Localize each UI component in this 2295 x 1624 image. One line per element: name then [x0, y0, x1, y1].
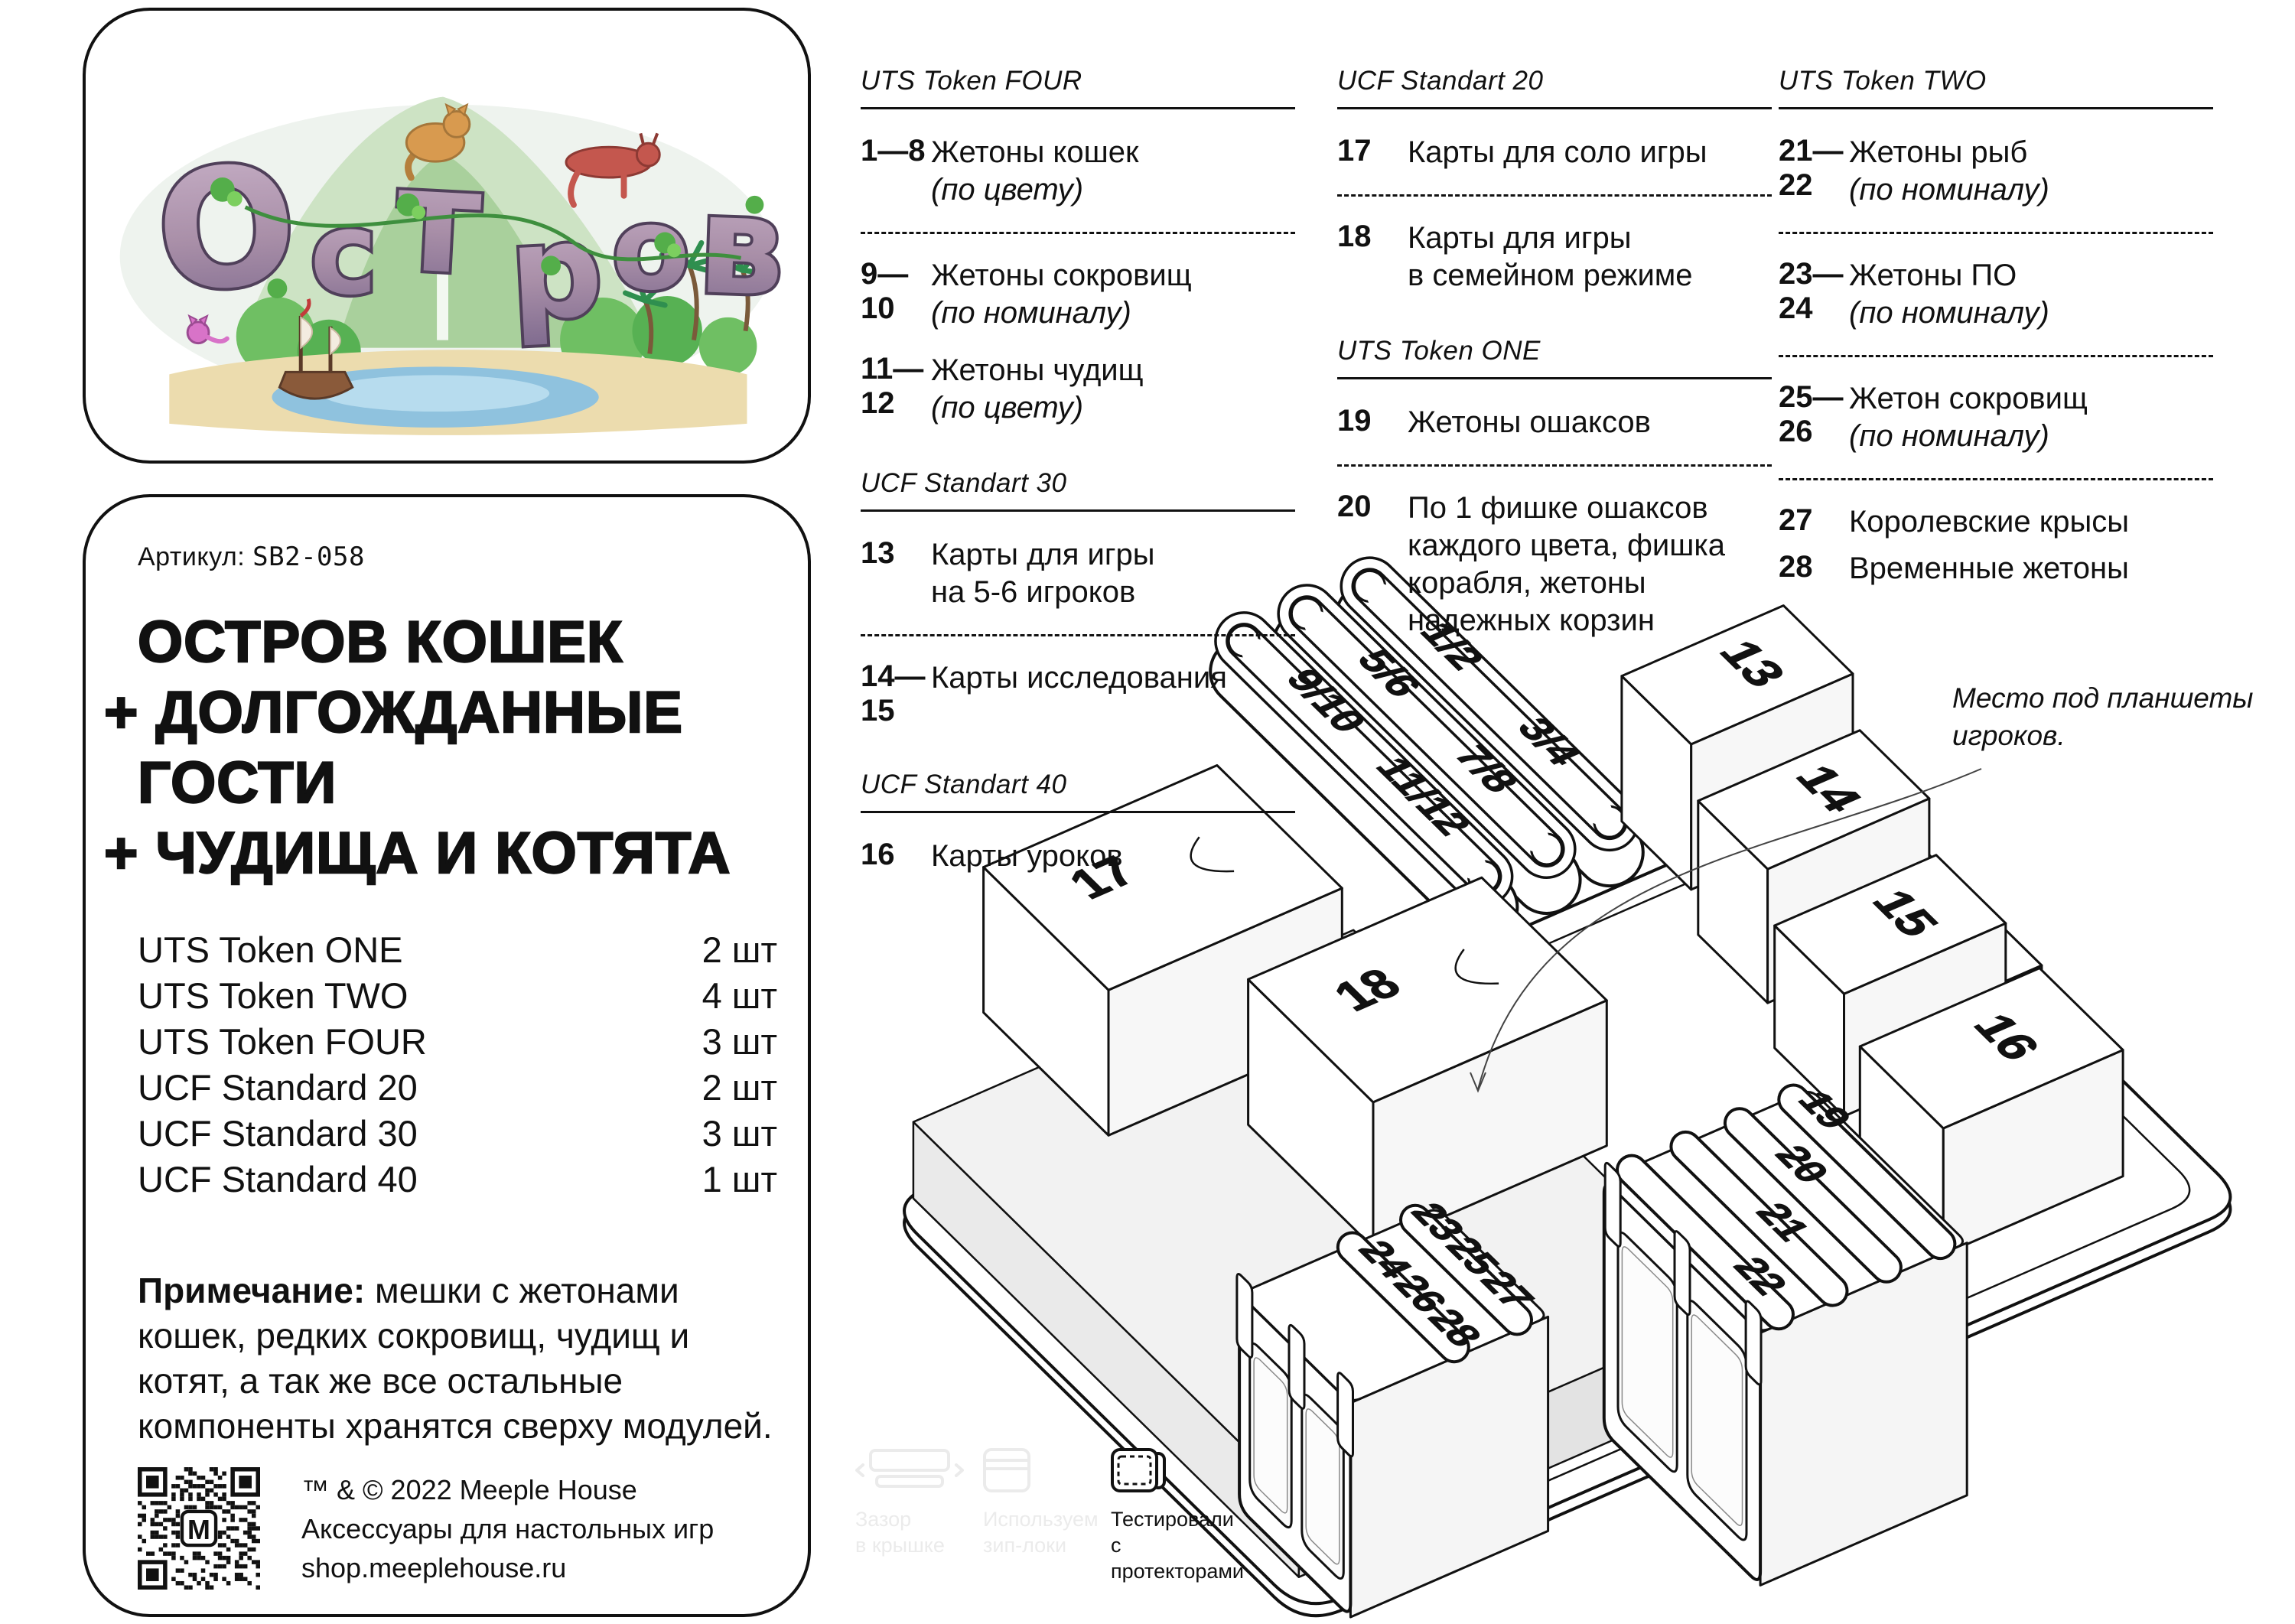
qr-module — [188, 1480, 193, 1485]
qr-module — [235, 1539, 239, 1544]
qr-module — [205, 1501, 210, 1505]
qr-module — [184, 1585, 189, 1590]
qr-module — [151, 1551, 155, 1556]
product-title: ОСТРОВ КОШЕК + ДОЛГОЖДАННЫЕ ГОСТИ + ЧУДИ… — [138, 607, 765, 889]
qr-module — [138, 1535, 142, 1539]
iso-box-left-clip — [1289, 1325, 1304, 1408]
item-text: надежных корзин — [1408, 602, 1725, 640]
qr-module — [171, 1556, 176, 1561]
list-item: 17 Карты для соло игры — [1337, 134, 1772, 171]
qr-module — [247, 1526, 252, 1531]
big-tray-18-side-sw — [1248, 979, 1373, 1248]
qr-module — [218, 1505, 223, 1510]
qr-module — [256, 1505, 260, 1510]
note: Примечание: мешки с жетонами кошек, редк… — [138, 1268, 777, 1449]
qr-module — [239, 1551, 243, 1556]
item-number: 28 — [1779, 550, 1849, 587]
qr-module — [247, 1581, 252, 1586]
qr-module — [226, 1535, 231, 1539]
iso-line — [1740, 1123, 1886, 1268]
list-item: 21—22 Жетоны рыб (по номиналу) — [1779, 134, 2213, 209]
qr-module — [218, 1476, 223, 1480]
tray-number-label: 27 — [1471, 1266, 1543, 1315]
qr-module — [239, 1564, 243, 1569]
logo-letter: в — [695, 165, 787, 327]
qr-module — [159, 1535, 164, 1539]
qr-module — [205, 1581, 210, 1586]
iso-line — [1793, 1100, 1940, 1245]
tray-number-label: 23 — [1401, 1197, 1473, 1246]
qr-module — [222, 1492, 226, 1497]
qr-module — [243, 1543, 248, 1548]
slab-side-se — [1299, 1309, 1739, 1577]
logo-letter: О — [151, 130, 302, 329]
tray-number-label: 18 — [1323, 959, 1412, 1020]
item-text: Жетоны рыб — [1849, 134, 2049, 171]
annotation-leader-line — [1478, 769, 1981, 1089]
dashed-divider — [1779, 355, 2213, 357]
list-item: 20 По 1 фишке ошаксов каждого цвета, фиш… — [1337, 490, 1772, 640]
qr-module — [146, 1568, 159, 1581]
iso-box-right-clip — [1746, 1301, 1761, 1385]
component-list: UTS Token ONE2 шт UTS Token TWO4 шт UTS … — [138, 927, 777, 1203]
tray-number-label: 22 — [1724, 1251, 1795, 1300]
card-tray-14-side-se — [1768, 799, 1929, 1003]
item-text: Карты для игры — [931, 536, 1154, 574]
qr-module — [226, 1560, 231, 1564]
product-title-line: ОСТРОВ КОШЕК — [138, 607, 765, 678]
qr-module — [155, 1522, 159, 1527]
card-tray-16-side-se — [1943, 1050, 2123, 1255]
item-text: Жетоны чудищ — [931, 352, 1144, 389]
item-text: каждого цвета, фишка — [1408, 527, 1725, 565]
qr-module — [252, 1560, 256, 1564]
qr-module — [184, 1489, 189, 1493]
iso-line — [1685, 1147, 1832, 1291]
qr-module — [138, 1522, 142, 1527]
tray-number-label: 20 — [1766, 1140, 1838, 1189]
qr-module — [163, 1518, 168, 1522]
qr-module — [171, 1484, 176, 1489]
component-name: UCF Standard 40 — [138, 1157, 418, 1203]
qr-module — [226, 1526, 231, 1531]
item-text: (по цвету) — [931, 389, 1144, 427]
qr-module — [176, 1581, 181, 1586]
qr-module — [222, 1518, 226, 1522]
qr-module — [163, 1535, 168, 1539]
qr-module — [230, 1518, 235, 1522]
item-number: 17 — [1337, 134, 1408, 171]
footer-icon-caption: Зазор в крышке — [855, 1506, 983, 1558]
footer-icon-caption: Тестировали с протекторами — [1111, 1506, 1239, 1584]
iso-box-right-front — [1604, 1185, 1760, 1580]
card-tray-15-top — [1775, 855, 2006, 994]
qr-module — [193, 1505, 197, 1510]
item-number: 27 — [1779, 503, 1849, 541]
qr-module — [168, 1518, 172, 1522]
item-text: Временные жетоны — [1849, 550, 2129, 587]
qr-module — [247, 1556, 252, 1561]
component-name: UCF Standard 30 — [138, 1111, 418, 1157]
component-qty: 1 шт — [702, 1157, 777, 1203]
tray-end-cap — [1594, 806, 1625, 837]
item-text: По 1 фишке ошаксов — [1408, 490, 1725, 527]
component-qty: 3 шт — [702, 1111, 777, 1157]
article-value: SB2-058 — [252, 542, 365, 572]
qr-module — [180, 1568, 184, 1573]
big-tray-18-top — [1248, 877, 1607, 1102]
qr-module — [180, 1489, 184, 1493]
item-text: на 5-6 игроков — [931, 574, 1154, 611]
qr-module — [252, 1509, 256, 1514]
qr-module — [176, 1535, 181, 1539]
copyright: ™ & © 2022 Meeple House Аксессуары для н… — [301, 1470, 714, 1587]
qr-module — [193, 1484, 197, 1489]
qr-module — [218, 1564, 223, 1569]
iso-line — [1353, 1248, 1454, 1348]
component-qty: 2 шт — [702, 1065, 777, 1111]
list-item: 28 Временные жетоны — [1779, 550, 2213, 587]
component-row: UCF Standard 401 шт — [138, 1157, 777, 1203]
qr-module — [218, 1556, 223, 1561]
qr-logo-letter: M — [187, 1515, 210, 1545]
annotation-line: Место под планшеты — [1952, 679, 2254, 717]
item-text: в семейном режиме — [1408, 257, 1693, 295]
qr-module — [235, 1505, 239, 1510]
qr-module — [188, 1492, 193, 1497]
qr-module — [210, 1585, 214, 1590]
qr-module — [163, 1526, 168, 1531]
qr-module — [168, 1551, 172, 1556]
qr-module — [222, 1531, 226, 1535]
caption-line: с протекторами — [1111, 1532, 1239, 1584]
qr-module — [252, 1514, 256, 1518]
qr-module — [171, 1543, 176, 1548]
qr-module — [222, 1484, 226, 1489]
product-title-line: ГОСТИ — [138, 748, 765, 819]
qr-module — [171, 1492, 176, 1497]
qr-module — [230, 1505, 235, 1510]
dashed-divider — [861, 232, 1295, 234]
card-tray-13-side-sw — [1622, 676, 1691, 890]
qr-module — [205, 1505, 210, 1510]
tray-number-label: 15 — [1861, 883, 1951, 943]
annotation-line: игроков. — [1952, 717, 2254, 754]
qr-module — [247, 1509, 252, 1514]
iso-box-right-top — [1608, 1092, 1962, 1330]
qr-module — [243, 1564, 248, 1569]
qr-module — [247, 1548, 252, 1552]
qr-module — [222, 1509, 226, 1514]
item-number: 25—26 — [1779, 380, 1849, 455]
qr-module — [155, 1501, 159, 1505]
qr-module — [243, 1551, 248, 1556]
column-header: UCF Standart 30 — [861, 468, 1295, 512]
qr-module — [151, 1535, 155, 1539]
card-tray-16-side-sw — [1860, 1046, 1943, 1255]
qr-module — [256, 1539, 260, 1544]
item-number: 13 — [861, 536, 931, 611]
list-item: 19 Жетоны ошаксов — [1337, 404, 1772, 441]
qr-module — [256, 1560, 260, 1564]
qr-module — [235, 1526, 239, 1531]
iso-box-left: 232527242628 — [1237, 1197, 1548, 1617]
iso-line — [1793, 1100, 1940, 1245]
qr-module — [213, 1472, 218, 1476]
column-header: UTS Token TWO — [1779, 66, 2213, 109]
qr-module — [235, 1564, 239, 1569]
qr-module — [235, 1577, 239, 1581]
iso-box-left-front — [1239, 1300, 1350, 1612]
iso-line — [1415, 1220, 1517, 1320]
qr-module — [210, 1480, 214, 1485]
qr-module — [159, 1509, 164, 1514]
qr-module — [239, 1556, 243, 1561]
iso-box-left-panel — [1250, 1343, 1292, 1527]
card-tray-13-side-se — [1691, 674, 1853, 890]
item-text: Королевские крысы — [1849, 503, 2129, 541]
column-uts-token-two: UTS Token TWO 21—22 Жетоны рыб (по номин… — [1779, 66, 2213, 607]
card-footer: M ™ & © 2022 Meeple House Аксессуары для… — [138, 1467, 714, 1590]
tray-number-label: 25 — [1436, 1232, 1508, 1281]
qr-module — [247, 1531, 252, 1535]
footer-icon-sleeves: Тестировали с протекторами — [1111, 1448, 1239, 1584]
iso-line — [1307, 644, 1546, 880]
item-number: 14—15 — [861, 659, 931, 728]
component-row: UCF Standard 202 шт — [138, 1065, 777, 1111]
iso-box-right-panel — [1688, 1300, 1746, 1540]
qr-module — [155, 1514, 159, 1518]
big-tray-17-side-sw — [984, 867, 1108, 1136]
card-tray-15-side-se — [1844, 923, 2006, 1116]
big-tray-18-side-se — [1373, 1001, 1606, 1248]
qr-module — [218, 1484, 223, 1489]
qr-module — [239, 1518, 243, 1522]
qr-module — [188, 1573, 193, 1577]
qr-module — [180, 1492, 184, 1497]
qr-module — [142, 1505, 147, 1510]
qr-module — [188, 1467, 193, 1472]
ziplock-icon — [983, 1448, 1113, 1494]
tray-number-label: 21 — [1746, 1198, 1818, 1247]
iso-box-right-clip — [1605, 1163, 1620, 1246]
item-number: 11—12 — [861, 352, 931, 427]
logo-art: О с т р о в — [86, 11, 808, 461]
item-number: 19 — [1337, 404, 1408, 441]
qr-module — [184, 1480, 189, 1485]
component-row: UTS Token FOUR3 шт — [138, 1019, 777, 1065]
pedestal-wall-side-sw — [1770, 731, 1867, 926]
copyright-line: Аксессуары для настольных игр — [301, 1509, 714, 1548]
qr-module — [151, 1518, 155, 1522]
iso-pedestal — [1770, 709, 2042, 1085]
qr-module — [210, 1501, 214, 1505]
qr-module — [168, 1505, 172, 1510]
item-number: 18 — [1337, 220, 1408, 295]
tray-number-label: 19 — [1789, 1085, 1860, 1134]
component-qty: 4 шт — [702, 973, 777, 1019]
qr-module — [197, 1492, 201, 1497]
component-name: UCF Standard 20 — [138, 1065, 418, 1111]
qr-module — [188, 1472, 193, 1476]
qr-module — [201, 1568, 206, 1573]
qr-module — [142, 1539, 147, 1544]
iso-line — [1632, 1170, 1779, 1315]
qr-module — [239, 1543, 243, 1548]
component-row: UTS Token TWO4 шт — [138, 973, 777, 1019]
card-tray-15-side-sw — [1775, 926, 1844, 1116]
qr-module — [155, 1509, 159, 1514]
qr-module — [252, 1526, 256, 1531]
qr-module — [184, 1505, 189, 1510]
qr-module — [218, 1543, 223, 1548]
column-header: UCF Standart 40 — [861, 770, 1295, 813]
item-number: 1—8 — [861, 134, 931, 209]
dashed-divider — [1337, 464, 1772, 467]
column-header: UTS Token ONE — [1337, 336, 1772, 379]
qr-module — [171, 1577, 176, 1581]
item-text: Карты исследования — [931, 659, 1227, 697]
qr-module — [171, 1518, 176, 1522]
qr-module — [218, 1535, 223, 1539]
column-uts-token-four: UTS Token FOUR 1—8 Жетоны кошек (по цвет… — [861, 66, 1295, 895]
list-item: 9—10 Жетоны сокровищ (по номиналу) — [861, 257, 1295, 332]
qr-module — [218, 1551, 223, 1556]
qr-module — [252, 1501, 256, 1505]
qr-module — [222, 1577, 226, 1581]
qr-module — [243, 1531, 248, 1535]
qr-module — [247, 1535, 252, 1539]
tray-number-label: 7/8 — [1445, 740, 1528, 799]
iso-box-left-panel — [1302, 1395, 1344, 1578]
item-text: (по цвету) — [931, 171, 1138, 209]
qr-module — [235, 1543, 239, 1548]
iso-box-right-panel-inner — [1691, 1315, 1742, 1525]
tray-number-label: 3/4 — [1508, 712, 1591, 771]
qr-module — [201, 1497, 206, 1502]
qr-module — [226, 1556, 231, 1561]
qr-module — [213, 1492, 218, 1497]
page: 1/23/45/67/89/1011/121314151617181920212… — [0, 0, 2295, 1624]
list-item: 13 Карты для игры на 5-6 игроков — [861, 536, 1295, 611]
item-text: (по номиналу) — [1849, 295, 2049, 332]
component-name: UTS Token FOUR — [138, 1019, 427, 1065]
qr-module — [247, 1522, 252, 1527]
item-text: Жетон сокровищ — [1849, 380, 2088, 418]
caption-line: зип-локи — [983, 1532, 1111, 1558]
qr-module — [163, 1551, 168, 1556]
item-text: Жетоны ошаксов — [1408, 404, 1651, 441]
finger-notch — [1456, 949, 1499, 984]
tray-number-label: 26 — [1384, 1269, 1456, 1318]
site-url: shop.meeplehouse.ru — [301, 1548, 714, 1587]
qr-module — [176, 1543, 181, 1548]
qr-module — [235, 1560, 239, 1564]
qr-module — [151, 1522, 155, 1527]
iso-line — [1632, 1170, 1779, 1315]
qr-module — [193, 1573, 197, 1577]
qr-module — [210, 1505, 214, 1510]
qr-module — [155, 1531, 159, 1535]
qr-module — [188, 1497, 193, 1502]
iso-box-right-side-se — [1760, 1243, 1967, 1586]
list-item: 14—15 Карты исследования — [861, 659, 1295, 728]
list-item: 18 Карты для игры в семейном режиме — [1337, 220, 1772, 295]
component-row: UCF Standard 303 шт — [138, 1111, 777, 1157]
iso-box-right-panel — [1618, 1232, 1677, 1472]
card-tray-14-top — [1698, 731, 1929, 869]
iso-box-right-clip — [1675, 1232, 1690, 1315]
qr-module — [159, 1548, 164, 1552]
qr-module — [138, 1501, 142, 1505]
component-qty: 2 шт — [702, 927, 777, 973]
logo-letter: с — [310, 188, 377, 321]
dashed-divider — [861, 634, 1295, 636]
qr-module — [252, 1548, 256, 1552]
item-text: (по номиналу) — [1849, 171, 2049, 209]
qr-module — [243, 1505, 248, 1510]
item-text: Карты уроков — [931, 838, 1123, 875]
qr-module — [184, 1560, 189, 1564]
footer-icon-lid-gap: Зазор в крышке — [855, 1448, 983, 1584]
qr-module — [142, 1514, 147, 1518]
qr-module — [176, 1531, 181, 1535]
qr-module — [213, 1564, 218, 1569]
tray-number-label: 14 — [1785, 758, 1874, 819]
qr-module — [235, 1573, 239, 1577]
iso-box-right: 19202122 — [1604, 1085, 1967, 1585]
qr-module — [180, 1556, 184, 1561]
qr-module — [197, 1476, 201, 1480]
qr-module — [222, 1556, 226, 1561]
iso-box-left-side-se — [1350, 1316, 1548, 1617]
list-item: 1—8 Жетоны кошек (по цвету) — [861, 134, 1295, 209]
footer-icons: Зазор в крышке Используем зип-локи — [855, 1448, 1239, 1584]
iso-box-left-top — [1244, 1210, 1544, 1400]
qr-module — [171, 1531, 176, 1535]
qr-code: M — [138, 1467, 260, 1590]
qr-module — [239, 1505, 243, 1510]
qr-module — [226, 1509, 231, 1514]
card-sleeve-icon — [1111, 1448, 1241, 1494]
qr-module — [205, 1489, 210, 1493]
qr-module — [213, 1467, 218, 1472]
qr-module — [197, 1497, 201, 1502]
qr-module — [151, 1531, 155, 1535]
card-tray-14-side-sw — [1698, 801, 1768, 1003]
lagoon-light — [321, 375, 549, 412]
qr-module — [239, 1476, 252, 1489]
qr-module — [213, 1505, 218, 1510]
qr-module — [180, 1581, 184, 1586]
qr-module — [176, 1484, 181, 1489]
component-name: UTS Token ONE — [138, 927, 403, 973]
qr-module — [239, 1573, 243, 1577]
caption-line: Используем — [983, 1506, 1111, 1532]
qr-module — [171, 1522, 176, 1527]
qr-module — [230, 1501, 235, 1505]
big-tray-17-side-se — [1108, 888, 1342, 1135]
qr-module — [213, 1573, 218, 1577]
qr-module — [222, 1543, 226, 1548]
qr-module — [197, 1581, 201, 1586]
item-text: корабля, жетоны — [1408, 565, 1725, 602]
iso-line — [1307, 644, 1546, 880]
qr-module — [205, 1480, 210, 1485]
qr-module — [256, 1585, 260, 1590]
item-number: 16 — [861, 838, 931, 875]
item-number: 23—24 — [1779, 257, 1849, 332]
